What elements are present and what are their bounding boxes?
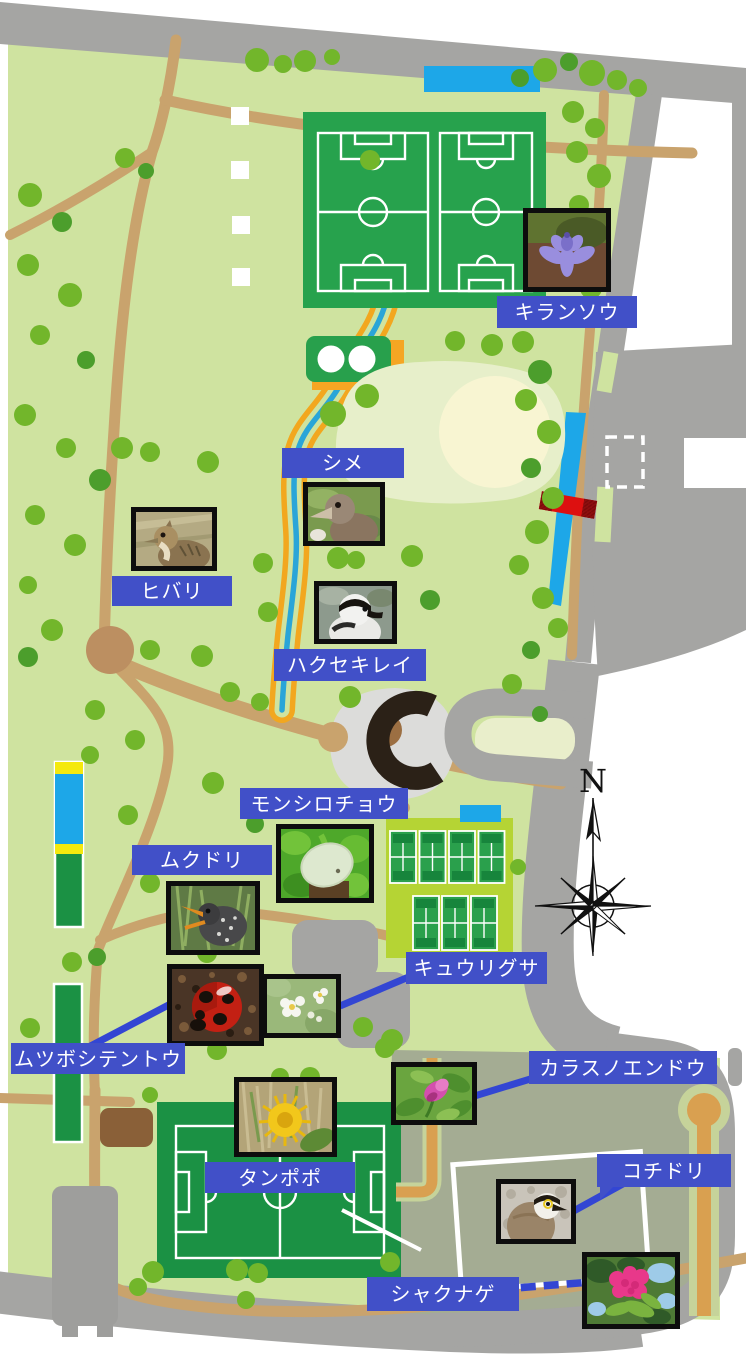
tree-icon [445,331,465,351]
label-tanpopo: タンポポ [205,1162,355,1193]
label-mukudori: ムクドリ [132,845,272,875]
photo-mutsuboshitentou [167,964,264,1046]
photo-shakunage [582,1252,680,1329]
tree-icon [64,534,86,556]
parking-area [593,344,746,676]
tennis-court [442,896,468,950]
tennis-court [390,831,416,883]
tree-icon [347,551,365,569]
tree-icon [381,1029,403,1051]
tree-icon [548,618,568,638]
tennis-court [413,896,439,950]
tree-icon [41,619,63,641]
label-mutsuboshitentou-text: ムツボシテントウ [14,1049,182,1069]
tree-icon [88,948,106,966]
label-kochidori-tail [600,1187,613,1200]
tree-icon [562,101,584,123]
tree-icon [320,401,346,427]
tree-icon [509,555,529,575]
tree-icon [14,404,36,426]
photo-hakusekirei [314,581,397,644]
tree-icon [522,641,540,659]
tree-icon [537,420,561,444]
tree-icon [62,952,82,972]
tree-icon [481,334,503,356]
tree-icon [512,331,534,353]
tree-icon [140,442,160,462]
tree-icon [125,730,145,750]
label-shime-text: シメ [322,453,364,473]
tree-icon [380,1252,400,1272]
tree-icon [17,254,39,276]
tree-icon [58,283,82,307]
tennis-court [479,831,505,883]
tree-icon [248,1263,268,1283]
tree-icon [585,118,605,138]
tree-icon [52,212,72,232]
tree-icon [629,79,647,97]
tree-icon [532,587,554,609]
label-kiransou-text: キランソウ [515,302,620,322]
tree-icon [511,69,529,87]
photo-monshirochou [276,824,374,903]
tree-icon [220,682,240,702]
label-kochidori-text: コチドリ [622,1161,706,1181]
park-wildlife-map: N [0,0,746,1359]
photo-hibari [131,507,217,571]
label-mukudori-text: ムクドリ [160,850,244,870]
label-kyuurigusa: キュウリグサ [406,952,547,984]
tree-icon [18,647,38,667]
tree-icon [355,384,379,408]
tree-icon [324,49,340,65]
tree-icon [353,1017,373,1037]
soccer-fields-top [303,112,546,308]
label-kochidori: コチドリ [597,1154,731,1187]
tree-icon [129,1278,147,1296]
photo-tanpopo [234,1077,337,1157]
tree-icon [138,163,154,179]
tree-icon [56,438,76,458]
tree-icon [360,150,380,170]
label-kiransou: キランソウ [497,296,637,328]
tree-icon [420,590,440,610]
tennis-courts [386,805,513,958]
photo-kiransou [523,208,611,292]
tree-icon [142,1087,158,1103]
tree-icon [111,437,133,459]
tree-icon [226,1259,248,1281]
label-hibari-text: ヒバリ [141,581,204,601]
tree-icon [253,553,273,573]
tree-icon [245,48,269,72]
tree-icon [528,360,552,384]
path-plaza [86,626,134,674]
label-karasunoendou: カラスノエンドウ [529,1051,717,1084]
tennis-court [449,831,475,883]
photo-shime [303,482,385,546]
label-kyuurigusa-text: キュウリグサ [414,958,540,978]
tree-icon [327,547,349,569]
label-monshirochou: モンシロチョウ [240,788,408,819]
label-hibari: ヒバリ [112,576,232,606]
tree-icon [81,746,99,764]
tree-icon [566,141,588,163]
tree-icon [502,674,522,694]
tree-icon [19,576,37,594]
tree-icon [510,859,526,875]
tree-icon [587,164,611,188]
tree-icon [25,505,45,525]
label-shakunage: シャクナゲ [367,1277,519,1311]
tree-icon [339,686,361,708]
tree-icon [274,55,292,73]
tree-icon [560,53,578,71]
tree-icon [118,805,138,825]
label-karasunoendou-text: カラスノエンドウ [539,1058,707,1078]
tree-icon [191,645,213,667]
tree-icon [525,520,549,544]
tree-icon [237,1291,255,1309]
tree-icon [533,58,557,82]
photo-kochidori [496,1179,576,1244]
tree-icon [251,693,269,711]
label-shakunage-text: シャクナゲ [391,1284,496,1304]
brown-hut [100,1108,153,1147]
tree-icon [197,451,219,473]
tree-icon [18,183,42,207]
photo-mukudori [166,881,260,955]
tree-icon [521,458,541,478]
tree-icon [258,602,278,622]
tree-icon [142,1261,164,1283]
gray-building [52,1186,118,1337]
tree-icon [515,389,537,411]
tree-icon [140,640,160,660]
label-monshirochou-text: モンシロチョウ [251,794,398,814]
tree-icon [115,148,135,168]
photo-kyuurigusa [262,974,341,1038]
tree-icon [20,1018,40,1038]
tree-icon [89,469,111,491]
label-hakusekirei-text: ハクセキレイ [287,655,413,675]
photo-karasunoendou [391,1062,477,1125]
tree-icon [542,487,564,509]
tree-icon [532,706,548,722]
label-hakusekirei: ハクセキレイ [274,649,426,681]
tennis-court [471,896,497,950]
tree-icon [202,772,224,794]
label-mutsuboshitentou: ムツボシテントウ [11,1043,185,1074]
tree-icon [607,70,627,90]
tree-icon [85,700,105,720]
tree-icon [401,545,423,567]
tree-icon [294,50,316,72]
tree-icon [77,351,95,369]
label-tanpopo-text: タンポポ [238,1168,322,1188]
tennis-court [420,831,446,883]
label-shime: シメ [282,448,404,478]
tree-icon [30,325,50,345]
tree-icon [579,60,605,86]
tree-icon [140,873,160,893]
compass-north-letter: N [579,762,607,800]
